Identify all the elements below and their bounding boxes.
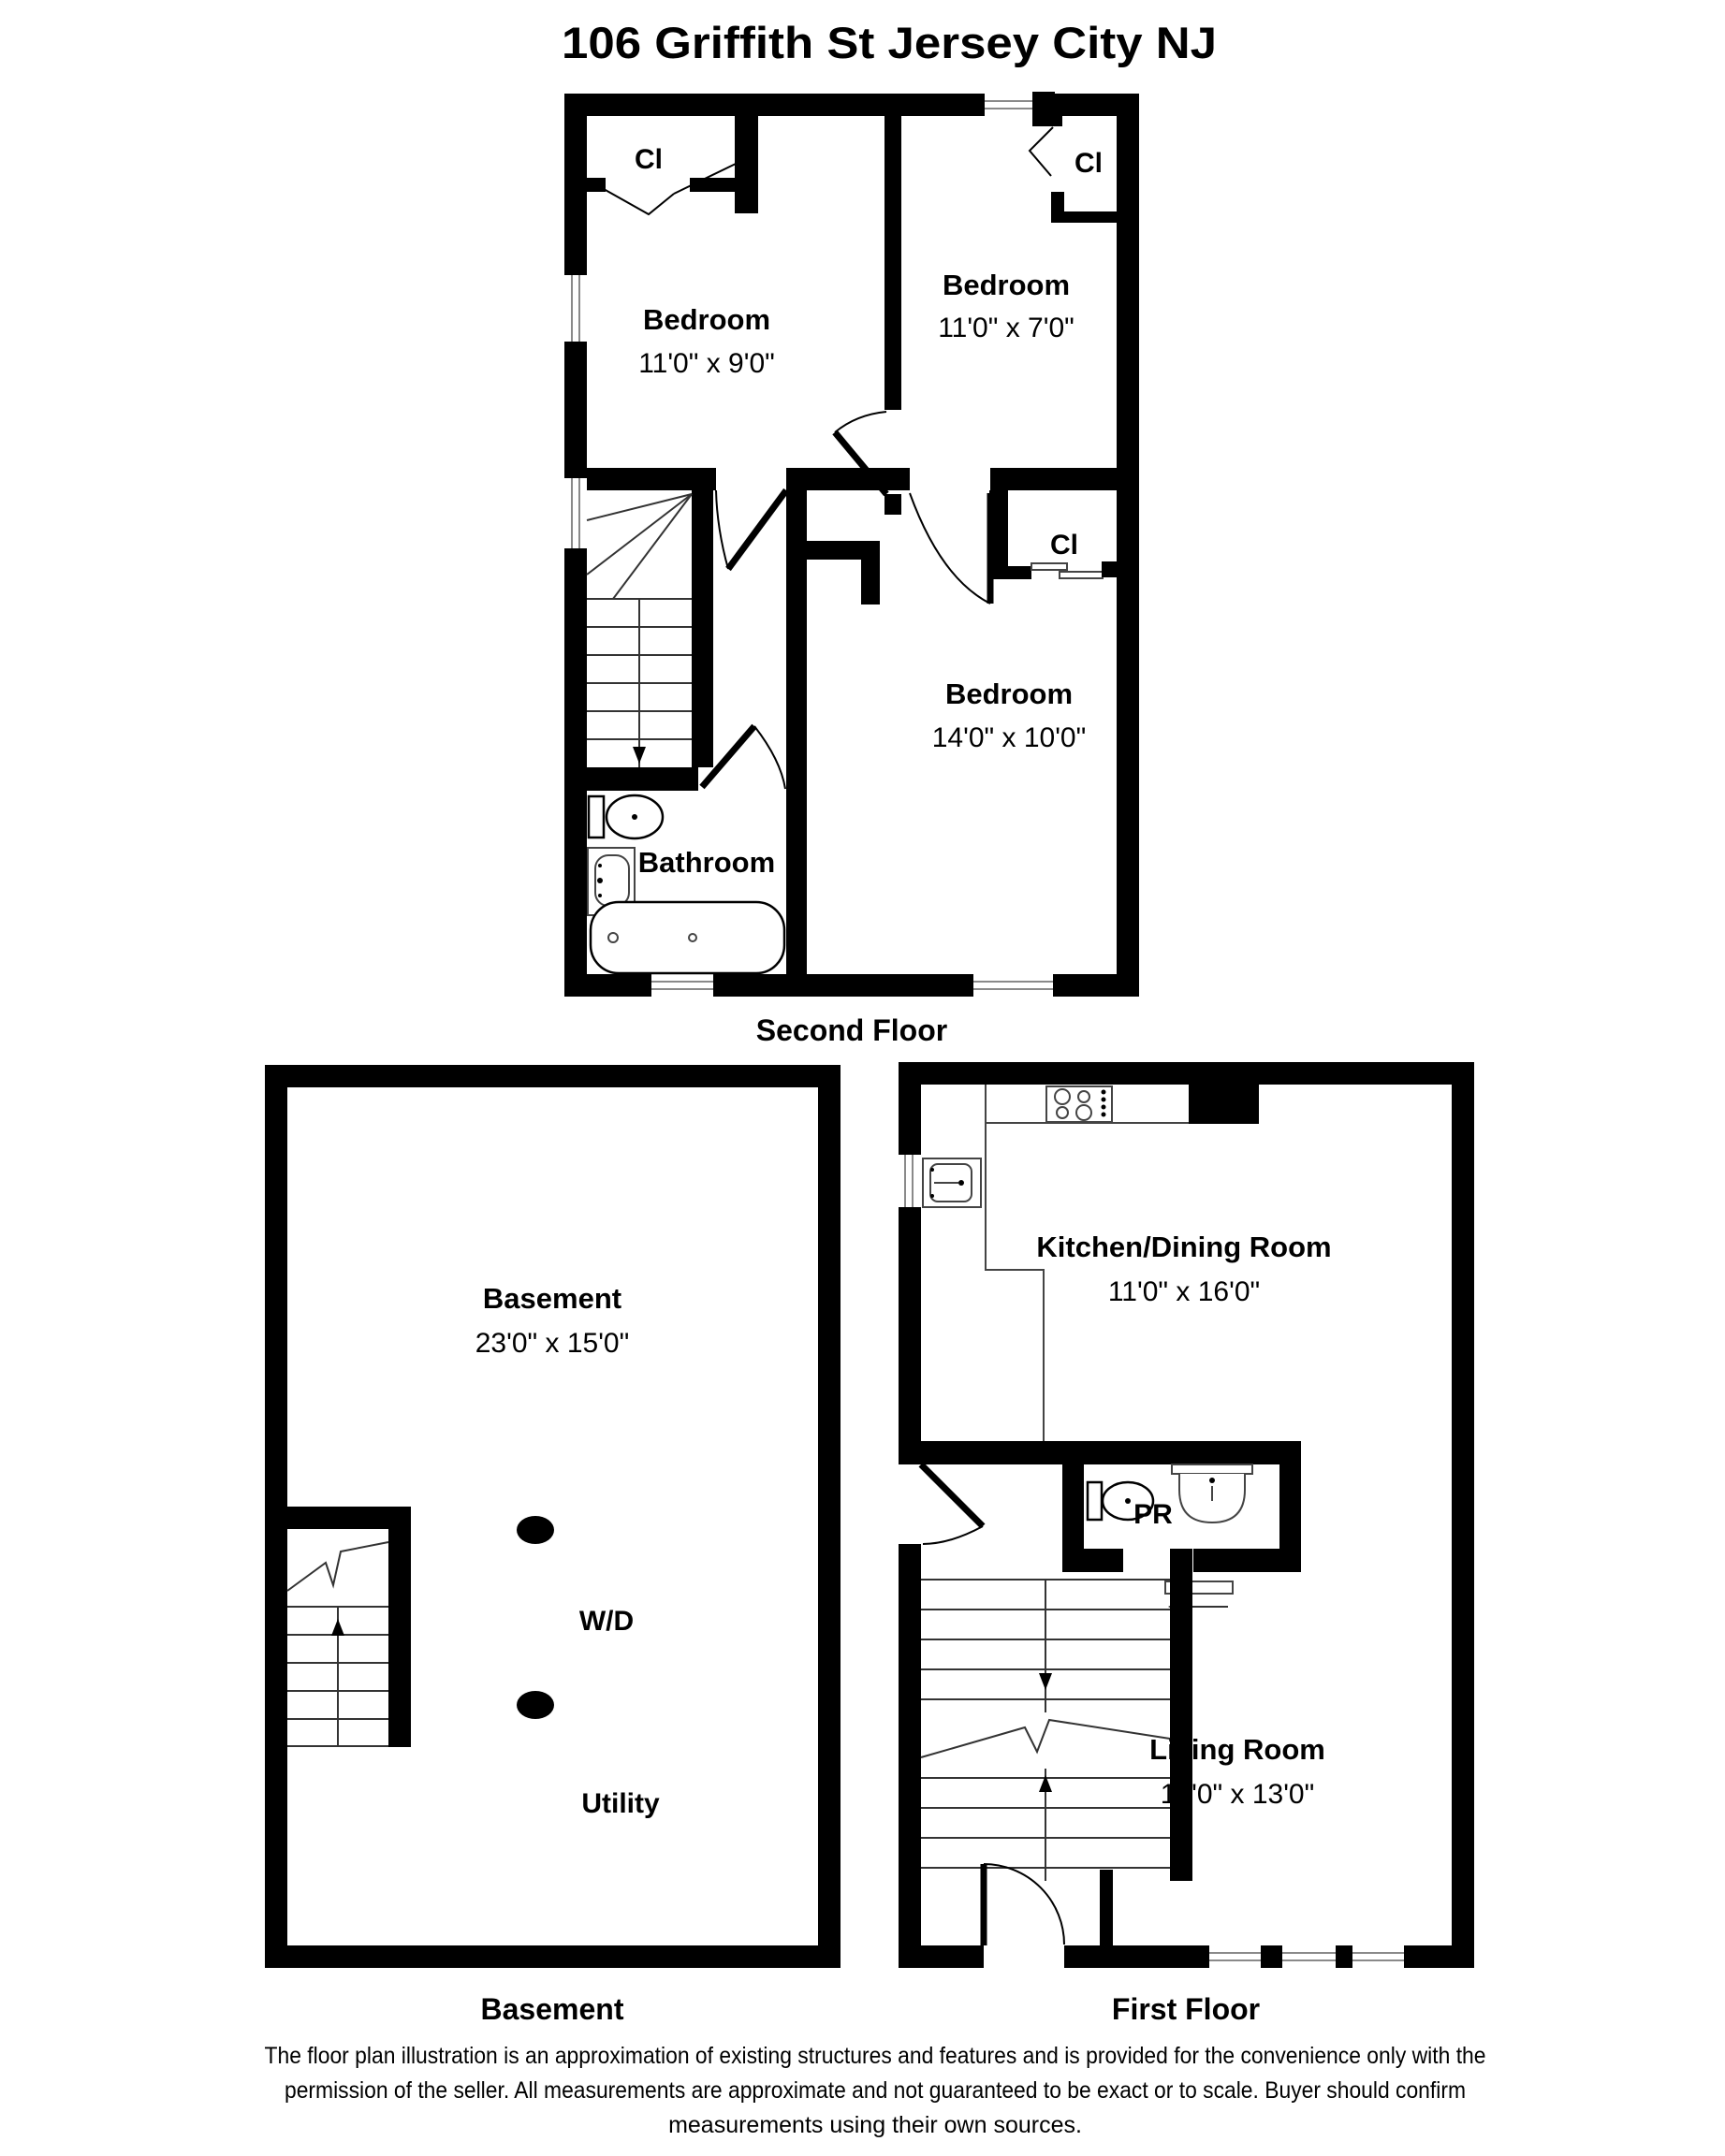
floor-plan-drawing: 106 Griffith St Jersey City NJ — [0, 0, 1725, 2156]
closet-door-icon — [1030, 127, 1053, 176]
disclaimer-line2: permission of the seller. All measuremen… — [285, 2077, 1466, 2104]
closet-middle: Cl — [989, 490, 1117, 579]
second-floor-stairs — [587, 490, 713, 767]
basement-room-dims: 23'0" x 15'0" — [475, 1328, 630, 1359]
window-icon — [1209, 1945, 1261, 1968]
hall-wall — [587, 468, 1117, 490]
kitchen-dims: 11'0" x 16'0" — [1108, 1276, 1260, 1307]
sliding-door-icon — [1031, 563, 1067, 570]
bedroom-right-door — [835, 412, 901, 515]
basement-plan: Basement 23'0" x 15'0" W/D Utility Basem… — [265, 1065, 841, 2026]
first-floor-stairs — [921, 1549, 1192, 1881]
utility-label: Utility — [581, 1788, 660, 1819]
bedroom-right-dims: 11'0" x 7'0" — [938, 313, 1074, 343]
powder-room: PR — [921, 1441, 1301, 1612]
bedroom-large-door — [910, 493, 990, 604]
window-icon — [564, 275, 587, 342]
interior-walls — [786, 490, 880, 974]
basement-caption: Basement — [481, 1992, 624, 2026]
bifold-door-icon — [604, 189, 674, 214]
disclaimer-line3: measurements using their own sources. — [668, 2112, 1082, 2138]
window-icon — [973, 974, 1053, 997]
page-title: 106 Griffith St Jersey City NJ — [562, 18, 1217, 67]
sink-icon — [1172, 1464, 1252, 1522]
bedroom-divider-wall — [884, 116, 901, 410]
kitchen-name: Kitchen/Dining Room — [1036, 1231, 1331, 1263]
bedroom-left-dims: 11'0" x 9'0" — [638, 348, 775, 379]
closet-top-left: Cl — [587, 116, 758, 214]
closet-label: Cl — [635, 144, 663, 175]
chimney — [1189, 1085, 1259, 1124]
living-room-name: Living Room — [1149, 1733, 1325, 1766]
powder-room-label: PR — [1133, 1499, 1173, 1530]
bathtub-icon — [591, 902, 784, 973]
second-floor-bathroom: Bathroom — [587, 726, 785, 973]
entry-door — [984, 1864, 1113, 1945]
kitchen-sink-icon — [923, 1158, 981, 1207]
window-icon — [899, 1155, 921, 1207]
stove-icon — [1046, 1086, 1112, 1122]
window-icon — [1352, 1945, 1404, 1968]
first-floor-caption: First Floor — [1112, 1992, 1260, 2026]
window-icon — [1282, 1945, 1336, 1968]
disclaimer-text: The floor plan illustration is an approx… — [265, 2043, 1486, 2138]
sliding-door-icon — [1060, 572, 1103, 578]
closet-label: Cl — [1050, 530, 1078, 561]
closet-label: Cl — [1074, 148, 1103, 179]
toilet-icon — [589, 795, 663, 838]
bedroom-large-name: Bedroom — [945, 677, 1073, 710]
living-room-dims: 14'0" x 13'0" — [1161, 1779, 1315, 1810]
bedroom-right-name: Bedroom — [943, 269, 1070, 301]
support-column — [517, 1691, 554, 1719]
window-icon — [564, 478, 587, 548]
second-floor-plan: Cl Cl — [564, 92, 1139, 1047]
window-icon — [985, 94, 1032, 116]
washer-dryer-label: W/D — [579, 1606, 634, 1637]
bedroom-large-dims: 14'0" x 10'0" — [932, 722, 1087, 753]
second-floor-caption: Second Floor — [756, 1013, 947, 1047]
first-floor-plan: PR — [899, 1062, 1474, 2026]
stairs-down-arrow — [1039, 1673, 1052, 1690]
stair-break-line — [921, 1720, 1170, 1757]
side-door — [921, 1464, 983, 1544]
basement-room-name: Basement — [483, 1282, 621, 1315]
bedroom-left-name: Bedroom — [643, 303, 770, 336]
bathroom-label: Bathroom — [638, 846, 775, 879]
stair-break-line — [287, 1542, 388, 1591]
support-column — [517, 1516, 554, 1544]
window-icon — [651, 974, 713, 997]
wall-stub — [1100, 1870, 1113, 1945]
bedroom-left-door — [716, 490, 786, 569]
floor-plan-page: 106 Griffith St Jersey City NJ — [0, 0, 1725, 2156]
disclaimer-line1: The floor plan illustration is an approx… — [265, 2043, 1486, 2069]
